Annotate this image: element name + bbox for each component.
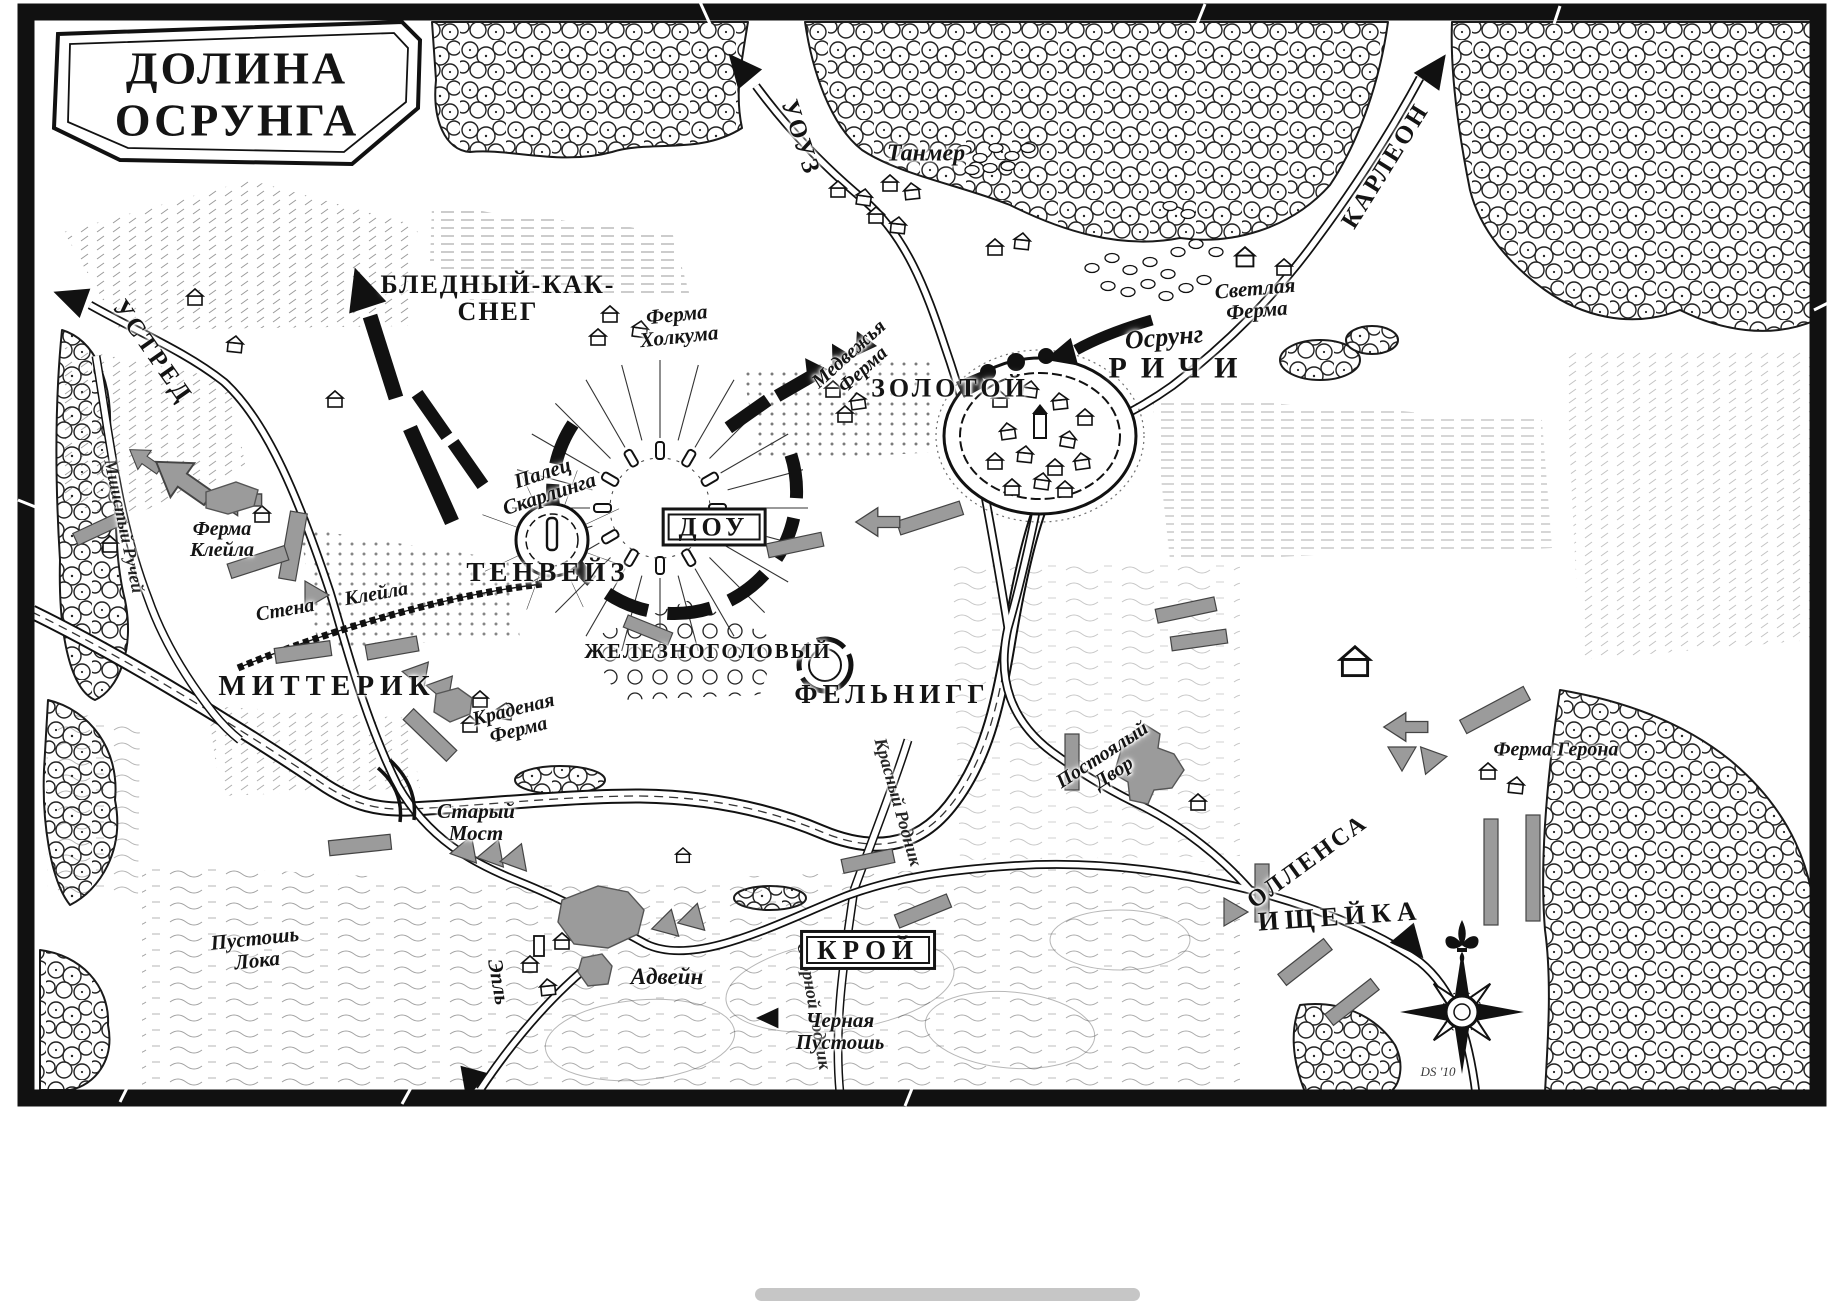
place-label-old-bridge: Старый Мост (437, 801, 515, 845)
osrung-valley-map: ДОЛИНА ОСРУНГА УОУЗ КАРЛЕОН УСТРЕД ОЛЛЕН… (0, 0, 1843, 1303)
map-artwork (0, 0, 1843, 1303)
label-kroy: КРОЙ (800, 930, 936, 970)
label-ironhead: ЖЕЛЕЗНОГОЛОВЫЙ (584, 641, 831, 663)
label-dow: ДОУ (662, 507, 767, 546)
place-label-adwein: Адвейн (631, 965, 704, 989)
place-label-tanmer: Танмер (887, 142, 965, 167)
horizontal-scrollbar-thumb[interactable] (755, 1288, 1140, 1301)
place-label-svetlaya-farm: Светлая Ферма (1214, 275, 1298, 326)
label-felnigg: ФЕЛЬНИГГ (794, 680, 989, 708)
artist-signature: DS '10 (1421, 1065, 1456, 1079)
label-tenways: ТЕНВЕЙЗ (466, 558, 629, 586)
label-mitterick: МИТТЕРИК (218, 671, 435, 701)
place-label-black-waste: Черная Пустошь (796, 1010, 885, 1054)
place-label-lok-waste: Пустошь Лока (210, 924, 303, 977)
label-golden: ЗОЛОТОЙ (871, 374, 1029, 401)
place-label-geron-farm: Ферма Герона (1493, 740, 1618, 761)
map-title: ДОЛИНА ОСРУНГА (115, 42, 360, 145)
label-reachey: РИЧИ (1108, 352, 1251, 383)
place-label-osrung-town: Осрунг (1124, 320, 1205, 354)
label-pale-as-snow: БЛЕДНЫЙ-КАК- СНЕГ (381, 271, 616, 325)
place-label-holkum-farm: Ферма Холкума (637, 300, 720, 352)
place-label-clail-farm: Ферма Клейла (190, 519, 254, 561)
